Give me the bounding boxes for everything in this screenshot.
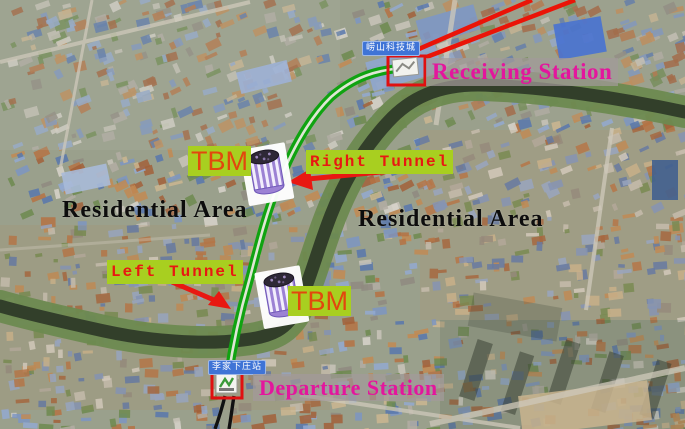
left-tunnel-label: Left Tunnel	[107, 260, 243, 284]
tbm-label-lower: TBM	[288, 286, 351, 316]
receiving-station-badge: 崂山科技城	[362, 41, 420, 56]
receiving-station-label: Receiving Station	[426, 58, 618, 86]
residential-area-label-right: Residential Area	[358, 206, 544, 233]
right-tunnel-label: Right Tunnel	[306, 150, 453, 174]
departure-station-label: Departure Station	[253, 374, 444, 401]
residential-area-label-left: Residential Area	[62, 197, 248, 224]
tunnel-route-map-figure: 崂山科技城 Receiving Station TBM Right Tunnel…	[0, 0, 685, 429]
departure-station-badge: 李家下庄站	[208, 360, 266, 375]
tbm-label-upper: TBM	[188, 146, 251, 176]
